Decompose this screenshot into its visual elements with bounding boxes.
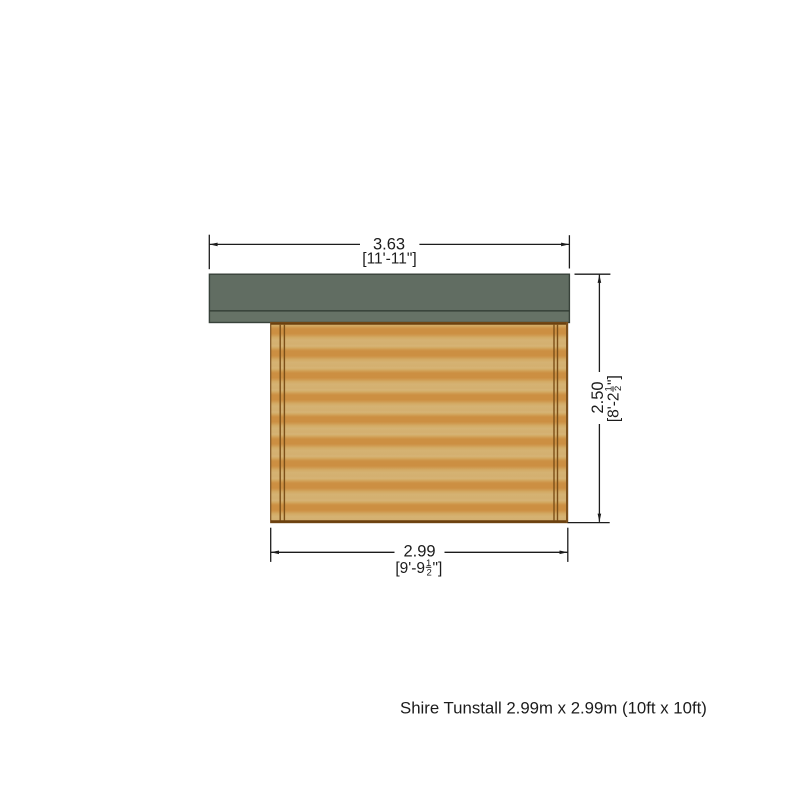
svg-text:Shire Tunstall 2.99m x 2.99m (: Shire Tunstall 2.99m x 2.99m (10ft x 10f… — [400, 699, 707, 718]
svg-text:[9'-9: [9'-9 — [395, 560, 425, 577]
svg-text:"]: "] — [433, 560, 443, 577]
svg-text:2: 2 — [613, 386, 624, 391]
svg-text:2: 2 — [427, 568, 432, 579]
svg-text:[11'-11"]: [11'-11"] — [362, 251, 416, 268]
svg-text:[8'-2: [8'-2 — [606, 393, 623, 423]
svg-text:"]: "] — [606, 375, 623, 385]
